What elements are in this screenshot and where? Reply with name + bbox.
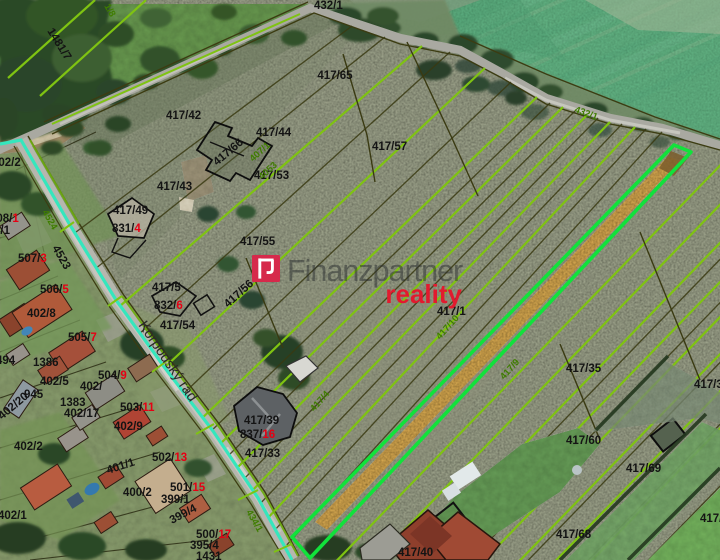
svg-text:4/1: 4/1 xyxy=(0,225,11,237)
svg-text:402/5: 402/5 xyxy=(40,376,69,388)
svg-text:402/17: 402/17 xyxy=(64,408,99,420)
svg-text:402/1: 402/1 xyxy=(0,510,27,522)
svg-text:505/7: 505/7 xyxy=(68,332,97,344)
svg-text:501/15: 501/15 xyxy=(170,482,206,494)
svg-text:503/11: 503/11 xyxy=(120,402,155,414)
svg-text:402/2: 402/2 xyxy=(14,441,43,453)
svg-text:506/5: 506/5 xyxy=(40,284,69,296)
svg-text:417/54: 417/54 xyxy=(160,320,196,332)
svg-text:502/13: 502/13 xyxy=(152,452,187,464)
svg-text:417/65: 417/65 xyxy=(317,70,353,82)
svg-text:417/55: 417/55 xyxy=(240,236,276,248)
svg-text:432/1: 432/1 xyxy=(314,0,343,12)
svg-text:1386: 1386 xyxy=(33,357,59,369)
svg-text:400/2: 400/2 xyxy=(123,487,152,499)
svg-text:402/: 402/ xyxy=(80,381,103,393)
svg-text:504/9: 504/9 xyxy=(98,370,127,382)
svg-text:417/: 417/ xyxy=(700,513,720,525)
svg-text:417/5: 417/5 xyxy=(152,282,181,294)
svg-text:417/35: 417/35 xyxy=(566,363,602,375)
svg-text:507/3: 507/3 xyxy=(18,253,47,265)
svg-text:831/4: 831/4 xyxy=(112,223,141,235)
svg-text:417/57: 417/57 xyxy=(372,141,407,153)
svg-text:1431: 1431 xyxy=(196,551,222,560)
svg-text:508/1: 508/1 xyxy=(0,213,19,225)
svg-text:494: 494 xyxy=(0,355,16,367)
svg-text:417/39: 417/39 xyxy=(244,415,279,427)
svg-text:417/44: 417/44 xyxy=(256,127,292,139)
svg-text:417/69: 417/69 xyxy=(626,463,661,475)
svg-text:417/33: 417/33 xyxy=(245,448,280,460)
svg-text:417/40: 417/40 xyxy=(398,547,433,559)
svg-text:417/68: 417/68 xyxy=(556,529,592,541)
svg-text:832/6: 832/6 xyxy=(154,300,183,312)
svg-text:402/2: 402/2 xyxy=(0,157,21,169)
svg-text:417/60: 417/60 xyxy=(566,435,601,447)
svg-text:417/42: 417/42 xyxy=(166,110,201,122)
svg-text:417/49: 417/49 xyxy=(113,205,148,217)
svg-text:399/1: 399/1 xyxy=(161,494,190,506)
svg-text:reality: reality xyxy=(385,279,462,309)
svg-text:402/9: 402/9 xyxy=(114,421,143,433)
svg-text:417/3: 417/3 xyxy=(694,379,720,391)
svg-text:837/16: 837/16 xyxy=(240,429,275,441)
svg-text:402/8: 402/8 xyxy=(27,308,56,320)
svg-text:417/43: 417/43 xyxy=(157,181,192,193)
